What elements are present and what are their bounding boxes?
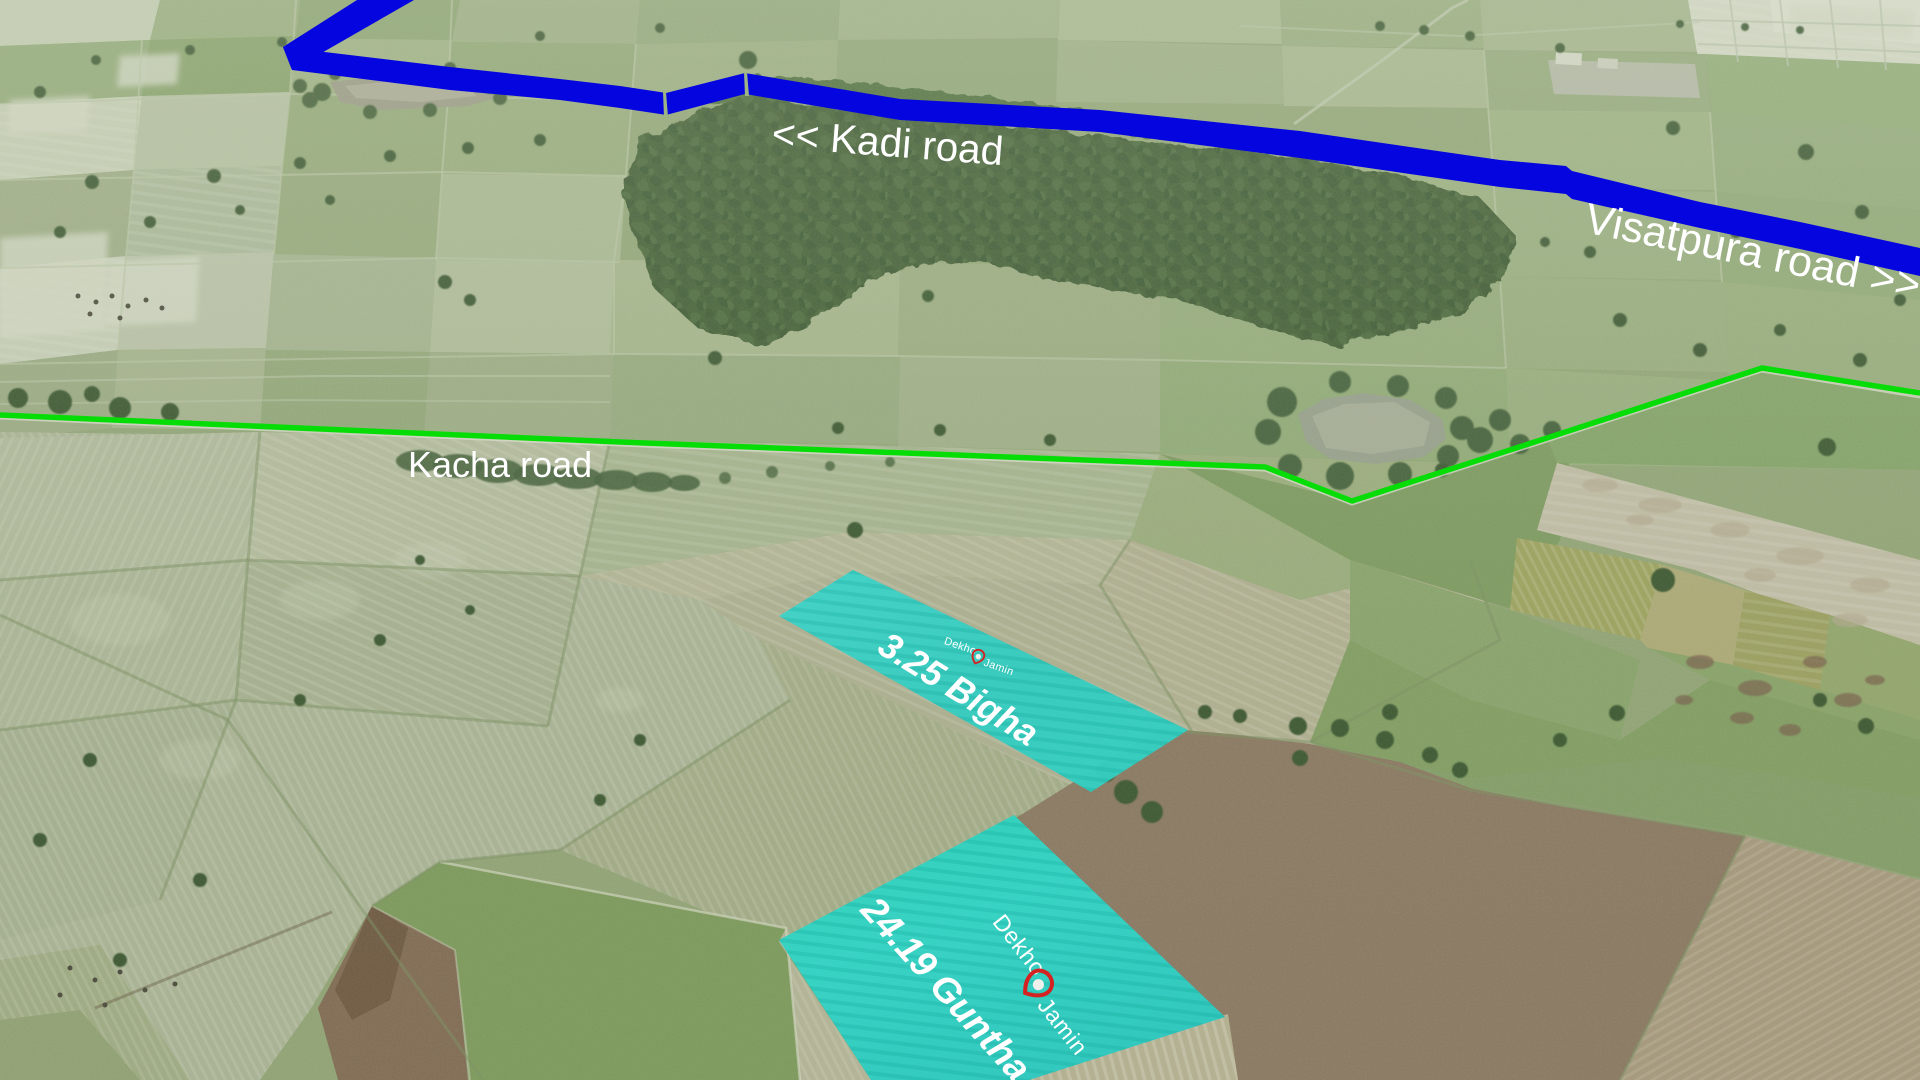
svg-text:Kacha road: Kacha road [408, 444, 592, 485]
